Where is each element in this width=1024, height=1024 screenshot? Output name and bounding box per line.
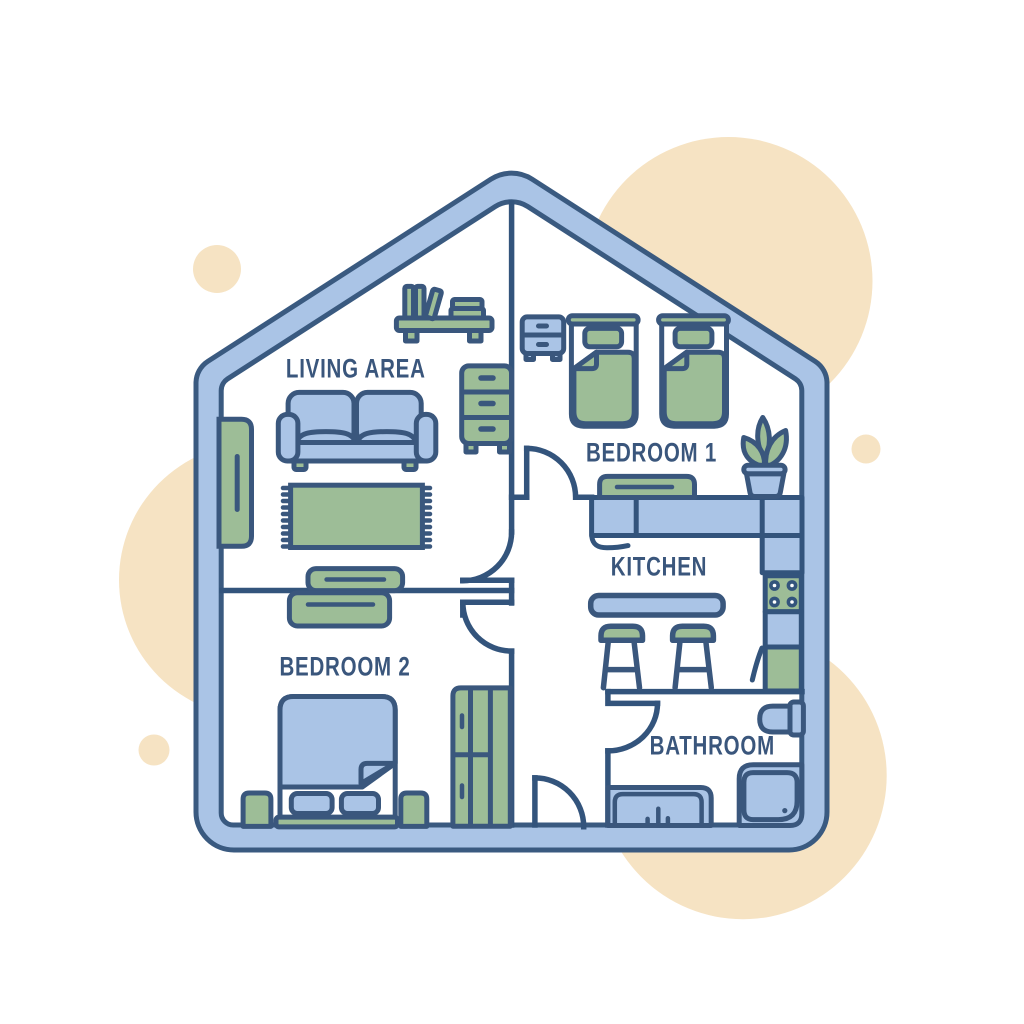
svg-text:KITCHEN: KITCHEN [611, 552, 707, 582]
svg-text:BEDROOM 1: BEDROOM 1 [586, 438, 717, 468]
svg-text:LIVING AREA: LIVING AREA [286, 354, 426, 384]
svg-text:BEDROOM 2: BEDROOM 2 [279, 652, 410, 682]
svg-text:BATHROOM: BATHROOM [650, 731, 775, 761]
